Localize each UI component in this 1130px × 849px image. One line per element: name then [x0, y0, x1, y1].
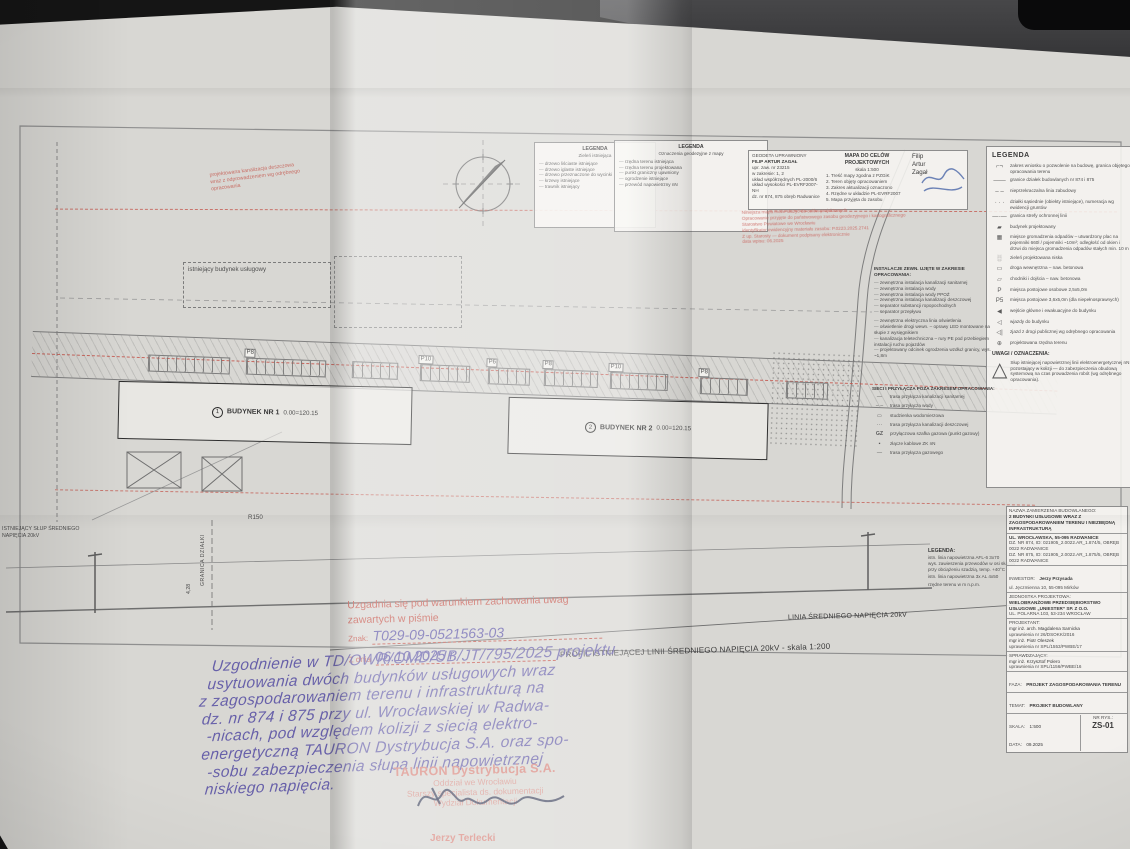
object-label: NAZWA ZAMIERZENIA BUDOWLANEGO: [1009, 508, 1125, 514]
building-1-level: 0.00=120.15 [283, 409, 318, 418]
tauron-signer-name: Jerzy Terlecki [430, 833, 495, 844]
parking-row: P8 [246, 358, 327, 378]
legend-installations: INSTALACJE ZEWN. UJĘTE W ZAKRESIE OPRACO… [874, 266, 1002, 359]
znak-handwritten-value: T029-09-0521563-03 [372, 622, 602, 645]
red-boundary-line-top [55, 209, 1117, 213]
horizontal-crease [0, 515, 1130, 529]
tauron-dept: Wydział Dokumentacji [360, 794, 590, 810]
horizontal-crease [0, 88, 1130, 98]
legend-networks: SIECI I PRZYŁĄCZA POZA ZAKRESEM OPRACOWA… [872, 386, 1012, 459]
address-line-2: DZ. NR 874, ID: 021905_2.0022.AR_1.874/5… [1009, 540, 1125, 552]
subject-label: TEMAT: [1009, 703, 1025, 708]
parking-row: P8 [544, 369, 599, 388]
legend-geodetic: LEGENDA Oznaczenia geodezyjne z mapy rzę… [614, 140, 768, 232]
entrance-symbol: ◀ [992, 308, 1007, 316]
parking-symbol: P [992, 287, 1007, 295]
road-symbol: ▭ [992, 265, 1007, 273]
legend-greenery: LEGENDA Zieleń istniejąca drzewo liścias… [534, 142, 656, 228]
gas-box-symbol: GZ [872, 431, 887, 438]
parking-row [352, 361, 399, 380]
handwritten-signature-icon [412, 776, 572, 820]
parking-label: P10 [608, 363, 623, 372]
sidewalk-symbol: ▱ [992, 276, 1007, 284]
handwritten-agreement-text: Uzgodnienie w TD/OWR/OMD/UB/JT/795/2025 … [197, 635, 762, 799]
red-boundary-line-bottom [55, 489, 1035, 505]
parking-label: P8 [698, 368, 710, 377]
red-annotation: projektowana kanalizacja deszczowa wraz … [209, 158, 333, 193]
map-stamp-surveyor-cell: Filip Artur Zagał [912, 153, 964, 207]
design-unit-name: WIELOBRANŻOWE PRZEDSIĘBIORSTWO USŁUGOWE … [1009, 600, 1125, 612]
date-handwritten-value: 06.10.2025 r. [375, 644, 555, 666]
parking-row [148, 355, 231, 375]
title-block: NAZWA ZAMIERZENIA BUDOWLANEGO: 2 BUDYNKI… [1006, 506, 1128, 753]
approval-note: Uzgadnia się pod warunkiem zachowania uw… [347, 593, 603, 668]
legend-geodetic-title: LEGENDA [619, 144, 763, 151]
cable-joint-symbol: ▪ [872, 441, 887, 448]
legend-main-title: LEGENDA [992, 151, 1130, 160]
map-stamp-title: MAPA DO CELÓW PROJEKTOWYCH [826, 153, 908, 167]
map-stamp-scale: skala 1:500 [826, 167, 908, 173]
building-1-name: BUDYNEK NR 1 [227, 408, 280, 418]
proposed-building-symbol: ▰ [992, 224, 1007, 232]
greenery-symbol: ░ [992, 255, 1007, 263]
photo-of-site-plan-document: P8 P10 P6 P8 P10 P8 1 BUDYNEK NR 1 0.00=… [0, 0, 1130, 849]
object-name: 2 BUDYNKI USŁUGOWE WRAZ Z ZAGOSPODAROWAN… [1009, 514, 1125, 532]
tauron-branch: Oddział we Wrocławiu [360, 774, 590, 790]
date-value: 09.2025 [1026, 742, 1043, 747]
waste-area-symbol: ▦ [992, 234, 1007, 252]
gate-symbol: ◁ [992, 319, 1007, 327]
legend-installations-title: INSTALACJE ZEWN. UJĘTE W ZAKRESIE OPRACO… [874, 266, 1002, 278]
parking-label: P8 [542, 360, 554, 369]
surveyor-signature-icon [920, 161, 966, 201]
scale-label: SKALA: [1009, 724, 1025, 729]
tauron-stamp: TAURON Dystrybucja S.A. Oddział we Wrocł… [359, 760, 590, 810]
building-2-name: BUDYNEK NR 2 [600, 423, 653, 433]
date-of-letter-label: Z dnia [349, 655, 371, 665]
building-1-number: 1 [212, 406, 223, 417]
approval-line-1: Uzgadnia się pod warunkiem zachowania uw… [347, 593, 602, 612]
legend-networks-title: SIECI I PRZYŁĄCZA POZA ZAKRESEM OPRACOWA… [872, 386, 1012, 392]
neighbor-parcel-symbol: · · · [992, 199, 1007, 211]
design-unit-label: JEDNOSTKA PROJEKTOWA: [1009, 594, 1125, 600]
approval-line-2: zawartych w piśmie [348, 608, 603, 627]
uwagi-note: Słup istniejącej napowietrznej linii ele… [1010, 360, 1130, 384]
legend-geodetic-subtitle: Oznaczenia geodezyjne z mapy [619, 151, 763, 157]
dimension-label: 4,28 [186, 570, 193, 594]
parcel-boundary-label: GRANICA DZIAŁKI [200, 524, 207, 586]
profile-legend: LEGENDA: istn. linia napowietrzna AFL-6 … [928, 548, 1028, 588]
designer-2: mgr inż. Piotr Oleszek [1009, 638, 1125, 644]
legend-main: LEGENDA ⌐¬zakres wniosku o pozwolenie na… [986, 146, 1130, 488]
checker-label: SPRAWDZAJĄCY: [1009, 653, 1125, 659]
compass-rose-icon [443, 140, 523, 226]
designer-2-license: uprawnienia nr SPL/1553/PWBE/17 [1009, 644, 1125, 650]
dark-desk-object [600, 0, 1130, 66]
date-label: DATA: [1009, 742, 1022, 747]
protection-zone-symbol: —·— [992, 213, 1007, 221]
surveyor-name: Filip Artur Zagał [912, 153, 964, 177]
parking-row [786, 381, 829, 400]
profile-legend-title: LEGENDA: [928, 548, 1028, 555]
building-2-number: 2 [585, 422, 596, 433]
boundary-symbol: ⌐¬ [992, 163, 1007, 175]
design-unit-address: UL. POLARNA 103, 53-234 WROCŁAW [1009, 611, 1125, 617]
address-line-1: UL. WROCŁAWSKA, 55-095 RADWANICE [1009, 535, 1125, 541]
stage-label: FAZA: [1009, 682, 1022, 687]
radius-label: R150 [248, 514, 263, 522]
uwagi-title: UWAGI / OZNACZENIA: [992, 351, 1130, 358]
checker-name: mgr inż. Krzysztof Polero [1009, 659, 1125, 665]
parking-label: P10 [418, 355, 433, 364]
tauron-company: TAURON Dystrybucja S.A. [359, 760, 589, 780]
scale-value: 1:500 [1030, 724, 1042, 729]
existing-pole-note: ISTNIEJĄCY SŁUP ŚREDNIEGO NAPIĘCIA 20kV [2, 526, 79, 540]
parking-row: P6 [488, 367, 531, 386]
znak-label: Znak: [348, 634, 368, 644]
building-1-outline: 1 BUDYNEK NR 1 0.00=120.15 [117, 381, 412, 445]
existing-building-2-outline [334, 256, 462, 328]
investor-address: ul. Jęczmienna 10, 55-095 Mirków [1009, 585, 1125, 591]
designer-1: mgr inż. arch. Magdalena Sarnicka [1009, 626, 1125, 632]
address-line-3: DZ. NR 875, ID: 021905_2.0022.AR_1.875/5… [1009, 552, 1125, 564]
registry-clause-stamp: Niniejsza mapa może służyć do celów proj… [742, 206, 923, 245]
parking-label: P8 [244, 348, 256, 357]
legend-greenery-subtitle: Zieleń istniejąca [539, 153, 651, 159]
map-stamp-left-column: GEODETA UPRAWNIONY FILIP ARTUR ZAGAŁ upr… [752, 153, 822, 207]
dark-corner-object [1018, 0, 1130, 30]
sheet-number: ZS-01 [1081, 721, 1125, 730]
pole-warning-triangle-icon: △ [992, 360, 1007, 384]
checker-license: uprawnienia nr SPL/1156/PWBE/16 [1009, 664, 1125, 670]
parking-row: P10 [420, 364, 471, 383]
existing-building-outline: istniejący budynek usługowy [183, 262, 331, 308]
exit-symbol: ◁| [992, 329, 1007, 337]
map-stamp-center-column: MAPA DO CELÓW PROJEKTOWYCH skala 1:500 1… [826, 153, 908, 207]
map-purpose-stamp: GEODETA UPRAWNIONY FILIP ARTUR ZAGAŁ upr… [748, 150, 968, 210]
parking-row: P10 [610, 372, 669, 391]
tauron-role: Starszy specjalista ds. dokumentacji [360, 784, 590, 800]
investor-name: Jerzy Przysada [1039, 576, 1072, 581]
legend-greenery-title: LEGENDA [539, 146, 651, 153]
building-2-outline: 2 BUDYNEK NR 2 0.00=120.15 [507, 397, 768, 460]
spot-elevation-symbol: ⊕ [992, 340, 1007, 348]
parcel-line-symbol: —— [992, 177, 1007, 185]
sheet-label: NR RYS.: [1081, 715, 1125, 721]
designer-1-license: uprawnienia nr 26/DSOKK/2016 [1009, 632, 1125, 638]
setback-line-symbol: – – [992, 188, 1007, 196]
building-2-level: 0.00=120.15 [656, 425, 691, 434]
subject-value: PROJEKT BUDOWLANY [1029, 703, 1082, 708]
gravel-area [768, 350, 861, 449]
parking-label: P6 [486, 358, 498, 367]
existing-building-label: istniejący budynek usługowy [184, 263, 330, 277]
profile-title: PROFIL ISTNIEJĄCEJ LINII ŚREDNIEGO NAPIĘ… [560, 642, 831, 659]
disabled-parking-symbol: P5 [992, 297, 1007, 305]
mv-line-label: LINIA ŚREDNIEGO NAPIĘCIA 20kV [788, 611, 907, 623]
parking-row: P8 [700, 377, 749, 396]
left-shadow [0, 0, 130, 849]
investor-label: INWESTOR: [1009, 576, 1035, 581]
stage-value: PROJEKT ZAGOSPODAROWANIA TERENU [1026, 682, 1121, 687]
designer-label: PROJEKTANT: [1009, 620, 1125, 626]
